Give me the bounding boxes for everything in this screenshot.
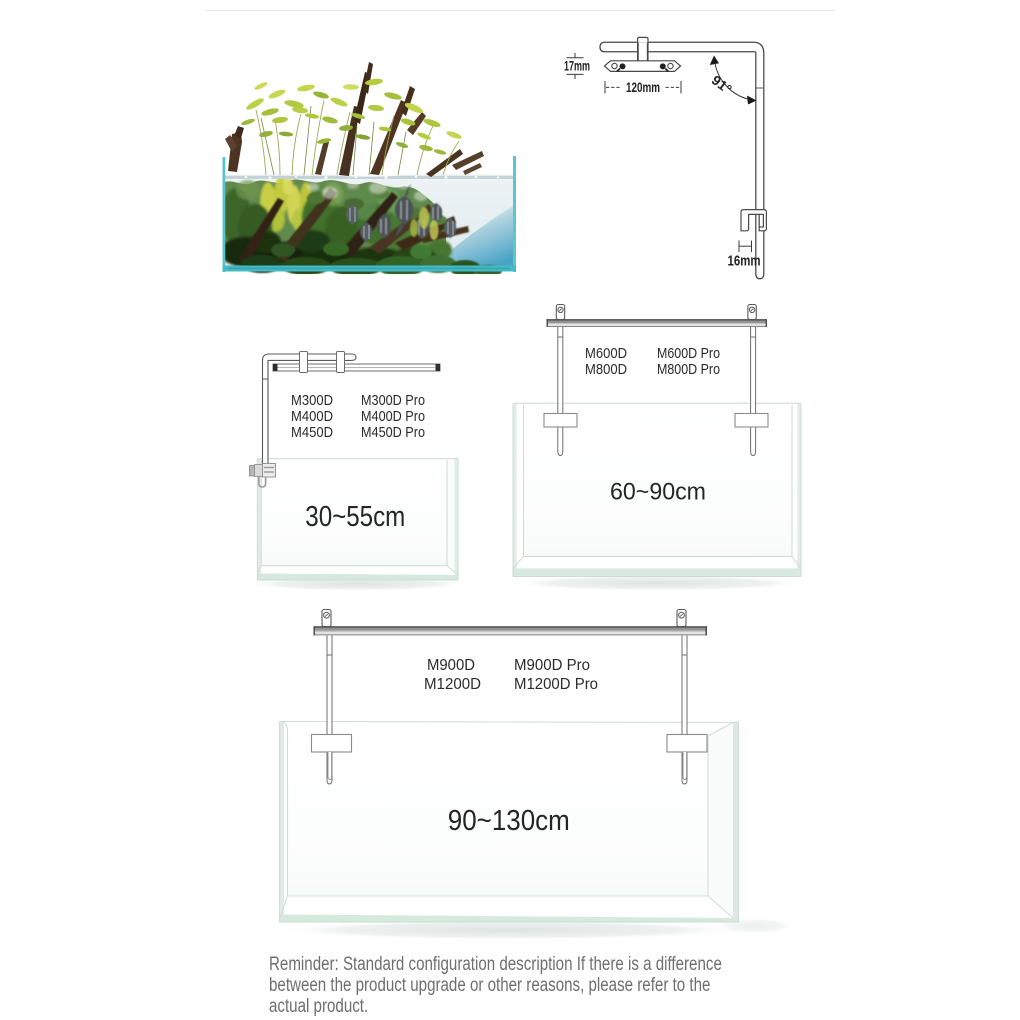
svg-text:91°: 91°	[709, 72, 735, 97]
svg-text:M900D: M900D	[427, 657, 475, 674]
svg-text:M400D Pro: M400D Pro	[361, 408, 425, 425]
svg-text:17mm: 17mm	[564, 59, 590, 74]
svg-text:30~55cm: 30~55cm	[305, 501, 405, 533]
svg-text:90~130cm: 90~130cm	[448, 805, 570, 837]
svg-text:M1200D Pro: M1200D Pro	[514, 676, 598, 693]
svg-text:M300D: M300D	[291, 392, 333, 409]
svg-text:M800D Pro: M800D Pro	[657, 361, 720, 378]
svg-text:120mm: 120mm	[626, 79, 660, 95]
svg-text:M450D: M450D	[291, 424, 333, 441]
svg-text:M450D Pro: M450D Pro	[361, 424, 425, 441]
svg-text:M600D Pro: M600D Pro	[657, 345, 720, 362]
svg-text:M900D Pro: M900D Pro	[514, 657, 590, 674]
svg-text:M1200D: M1200D	[424, 676, 481, 693]
svg-text:60~90cm: 60~90cm	[610, 478, 706, 505]
svg-text:16mm: 16mm	[728, 254, 761, 270]
svg-text:M800D: M800D	[585, 361, 627, 378]
svg-text:M300D Pro: M300D Pro	[361, 392, 425, 409]
svg-text:M400D: M400D	[291, 408, 333, 425]
svg-text:M600D: M600D	[585, 345, 627, 362]
